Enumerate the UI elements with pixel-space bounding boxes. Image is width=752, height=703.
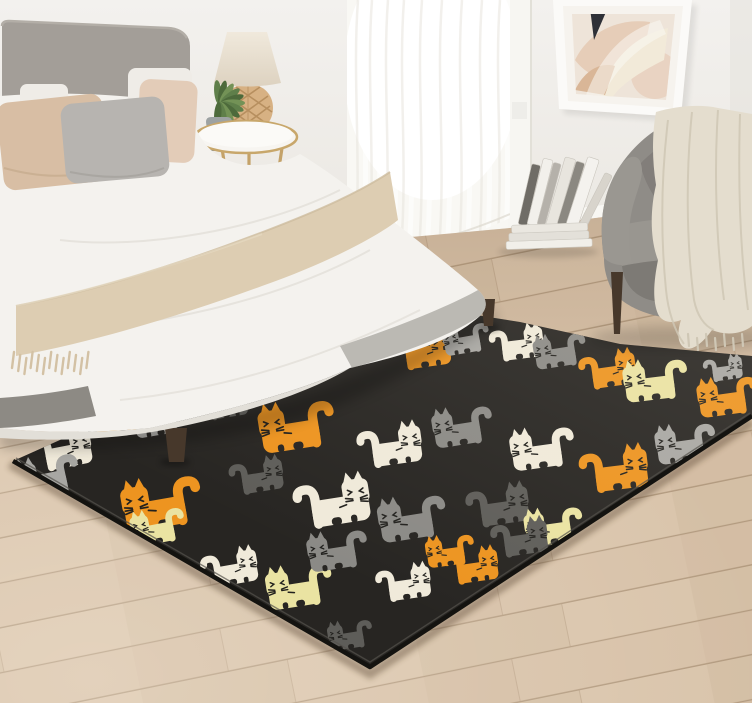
fringe-tassel: [742, 334, 743, 346]
scene-canvas: [0, 0, 752, 703]
curtain-fold-light: [409, 0, 412, 250]
fringe-tassel: [706, 334, 707, 346]
curtain-fold-light: [487, 0, 490, 250]
curtain-fold-light: [447, 0, 450, 250]
table-top-surface: [199, 122, 293, 148]
curtain-fold-light: [505, 0, 508, 250]
curtain-fold-light: [427, 0, 430, 250]
book-slabs: [506, 223, 592, 250]
fringe-tassel: [688, 334, 689, 346]
fringe-tassel: [697, 338, 698, 350]
fringe-tassel: [715, 338, 716, 350]
fringe-tassel: [733, 338, 734, 350]
framed-art: [553, 0, 697, 122]
bedroom-photo: [0, 0, 752, 703]
chair-throw-blanket: [652, 106, 752, 350]
fringe-tassel: [724, 334, 725, 346]
trim-bracket: [512, 102, 527, 119]
curtain-fold-light: [467, 0, 470, 250]
